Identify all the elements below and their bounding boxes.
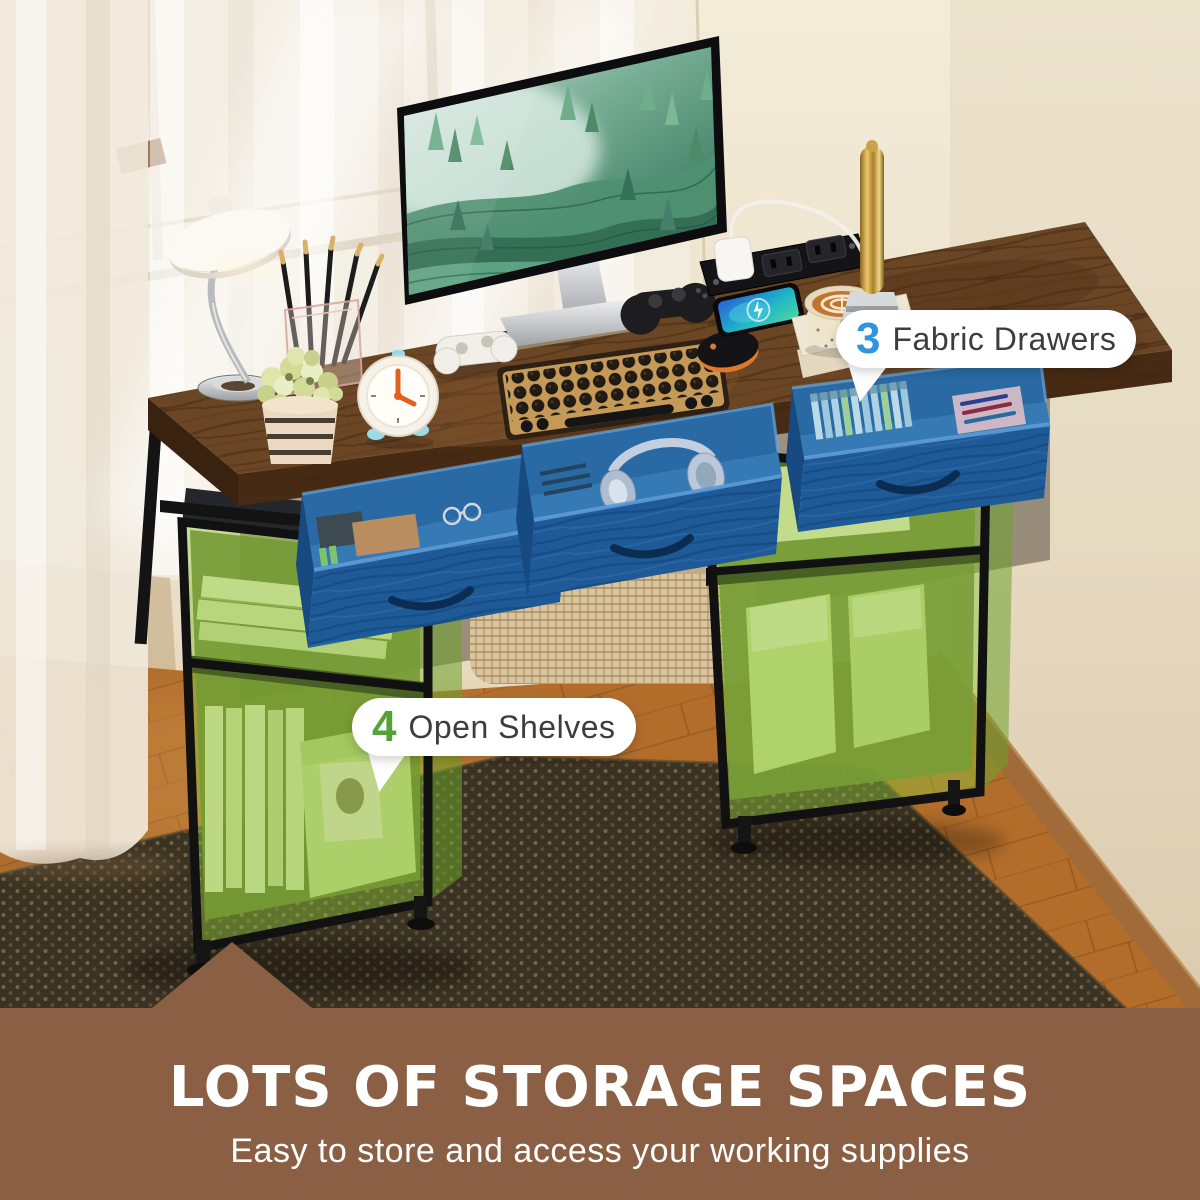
drawer-label: Fabric Drawers xyxy=(892,321,1116,358)
banner-notch xyxy=(152,942,312,1008)
shelf-label: Open Shelves xyxy=(408,709,615,746)
product-marketing-image: 3 Fabric Drawers 4 Open Shelves LOTS OF … xyxy=(0,0,1200,1200)
banner-subtitle: Easy to store and access your working su… xyxy=(0,1132,1200,1171)
banner-title: LOTS OF STORAGE SPACES xyxy=(0,1060,1200,1116)
callout-open-shelves: 4 Open Shelves xyxy=(352,698,636,756)
shelf-count: 4 xyxy=(372,705,396,749)
callout-fabric-drawers: 3 Fabric Drawers xyxy=(836,310,1136,368)
bottom-banner: LOTS OF STORAGE SPACES Easy to store and… xyxy=(0,1008,1200,1200)
drawer-count: 3 xyxy=(856,317,880,361)
